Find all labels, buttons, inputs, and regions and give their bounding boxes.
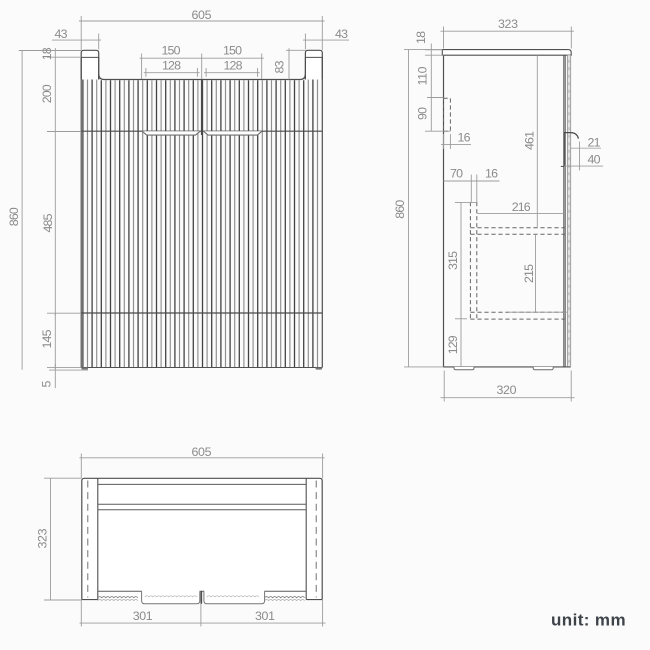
svg-text:18: 18 xyxy=(40,47,54,60)
svg-text:110: 110 xyxy=(416,66,430,85)
svg-text:128: 128 xyxy=(224,59,243,73)
svg-text:461: 461 xyxy=(523,131,537,150)
svg-text:315: 315 xyxy=(446,251,460,270)
svg-text:216: 216 xyxy=(512,200,531,214)
svg-text:323: 323 xyxy=(498,17,518,31)
svg-text:301: 301 xyxy=(133,609,153,623)
svg-text:129: 129 xyxy=(446,335,460,354)
svg-text:605: 605 xyxy=(192,8,212,22)
svg-text:128: 128 xyxy=(162,59,181,73)
svg-text:200: 200 xyxy=(40,84,54,103)
svg-text:320: 320 xyxy=(497,383,517,397)
svg-text:145: 145 xyxy=(40,329,54,348)
svg-text:unit: mm: unit: mm xyxy=(551,611,626,630)
svg-text:860: 860 xyxy=(7,207,21,226)
svg-text:43: 43 xyxy=(335,27,348,41)
svg-text:215: 215 xyxy=(522,264,536,283)
svg-text:90: 90 xyxy=(416,107,430,120)
svg-text:605: 605 xyxy=(192,445,212,459)
svg-text:16: 16 xyxy=(458,130,471,144)
svg-text:83: 83 xyxy=(273,60,287,73)
svg-text:150: 150 xyxy=(162,43,181,57)
svg-text:323: 323 xyxy=(36,528,50,548)
svg-text:16: 16 xyxy=(485,166,498,180)
svg-text:5: 5 xyxy=(40,380,54,387)
svg-text:70: 70 xyxy=(450,166,463,180)
svg-text:301: 301 xyxy=(255,609,275,623)
svg-text:485: 485 xyxy=(41,213,55,232)
svg-text:150: 150 xyxy=(223,43,242,57)
svg-text:860: 860 xyxy=(393,200,407,219)
svg-text:21: 21 xyxy=(588,136,601,150)
svg-text:18: 18 xyxy=(414,31,428,44)
svg-text:43: 43 xyxy=(55,27,68,41)
svg-text:40: 40 xyxy=(588,152,601,166)
